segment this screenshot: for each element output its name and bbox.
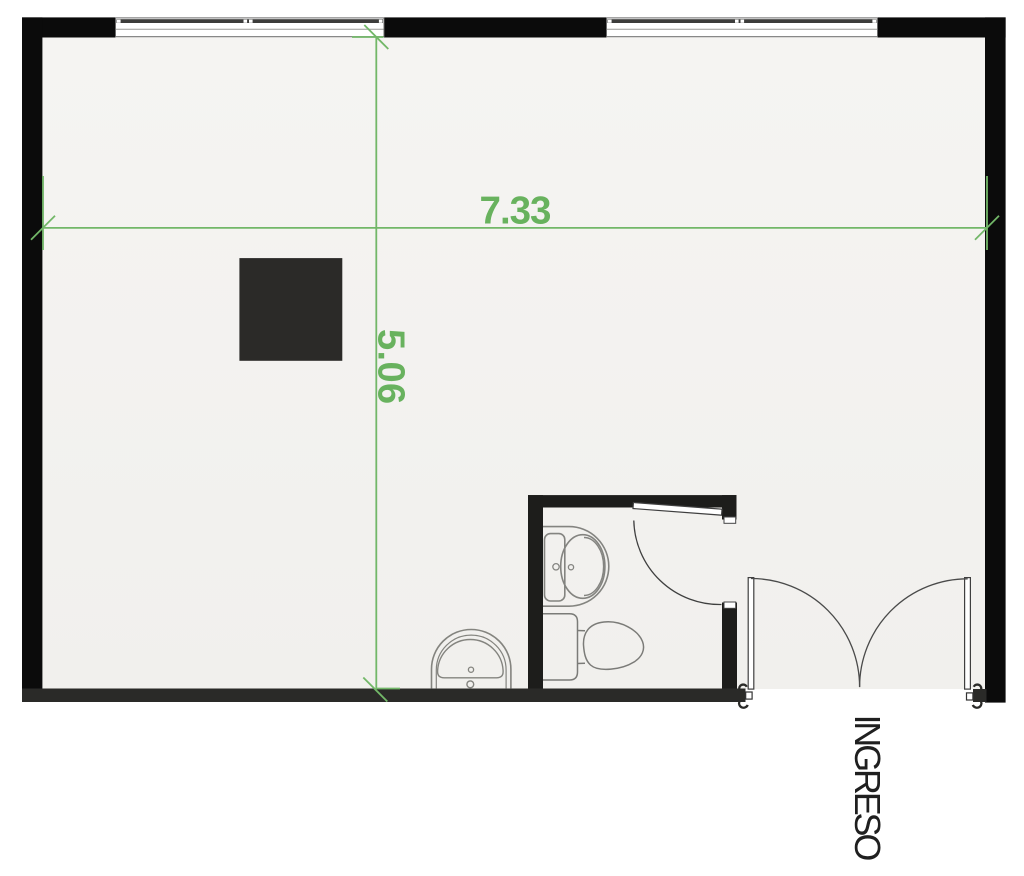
svg-text:7.33: 7.33 bbox=[480, 190, 552, 233]
svg-text:5.06: 5.06 bbox=[370, 329, 412, 405]
svg-text:INGRESO: INGRESO bbox=[847, 715, 888, 861]
